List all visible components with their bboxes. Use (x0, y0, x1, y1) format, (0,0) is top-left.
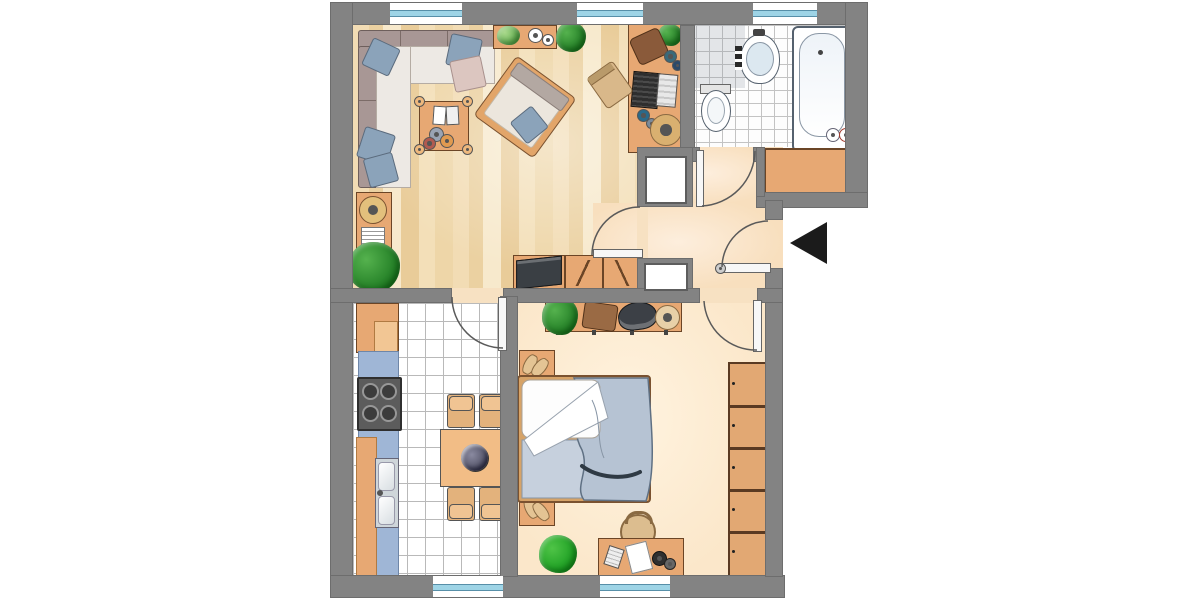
door-swing-arcs (0, 0, 1200, 600)
entrance-arrow (790, 222, 827, 264)
floor-plan (0, 0, 1200, 600)
